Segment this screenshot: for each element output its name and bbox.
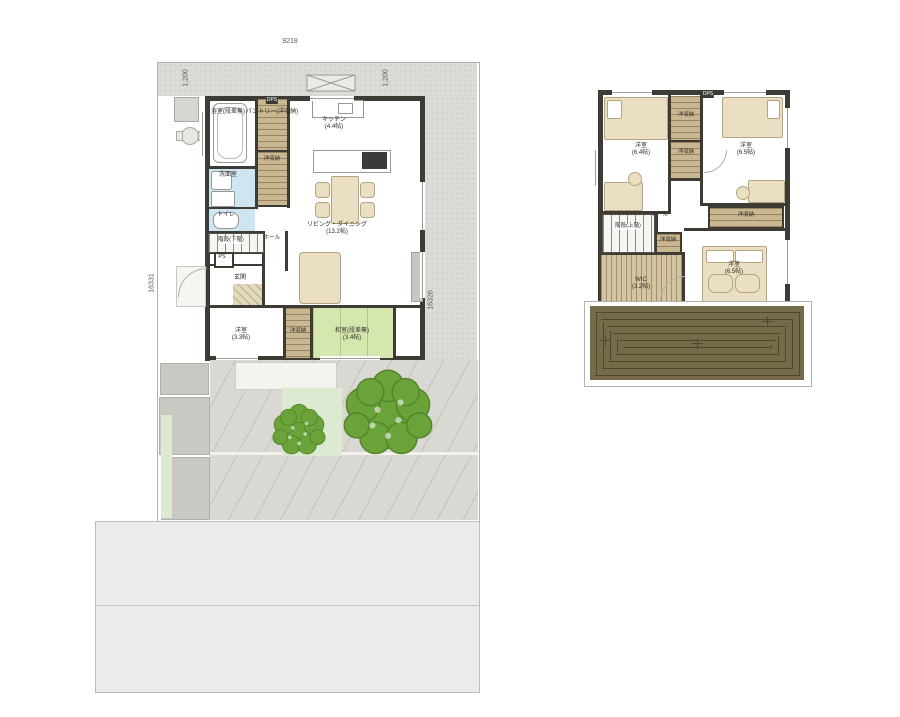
wall-segment (668, 178, 703, 181)
room-label-closet-mid: 洋収納 (264, 156, 281, 163)
stepping-paver (160, 363, 209, 395)
bedroom-ne-size: (6.5帖) (737, 150, 755, 156)
wall-segment (700, 90, 703, 206)
room-label-kitchen: キッチン(4.4帖) (322, 117, 346, 131)
wall-segment (205, 166, 258, 169)
stove-icon (362, 152, 387, 169)
window (724, 90, 766, 95)
living-size: (13.2帖) (326, 229, 348, 235)
floor-plan-canvas: 9218 1,200 1,200 16331 16326 9209 (0, 0, 900, 717)
outdoor-unit-icon (174, 97, 199, 122)
chair-icon (360, 182, 375, 198)
tree-icon (336, 363, 440, 467)
window (785, 108, 790, 148)
wall-segment (700, 203, 790, 206)
chair-icon (315, 182, 330, 198)
window (200, 112, 205, 156)
room-label-bedroom-ne: 洋室(6.5帖) (737, 143, 755, 157)
bedroom-nw-size: (6.4帖) (632, 150, 650, 156)
room-label-hall-2f: ホール (652, 212, 669, 219)
room-label-toilet: トイレ (217, 212, 235, 219)
desk-chair-icon (736, 186, 750, 200)
wic-name: WIC (635, 277, 647, 283)
dim-left: 16331 (149, 273, 156, 292)
bedroom-s-name: 洋室 (728, 262, 740, 268)
wall-segment (671, 140, 700, 142)
wall-segment (205, 207, 258, 209)
dim-right: 16326 (428, 290, 435, 309)
window (310, 96, 354, 101)
wall-segment (310, 308, 313, 361)
wall-segment (205, 305, 425, 308)
wall-segment (255, 150, 290, 152)
wall-segment (393, 308, 396, 361)
pillow-icon (607, 100, 622, 119)
window (593, 150, 598, 186)
kitchen-sink-icon (338, 103, 353, 114)
wic-size: (3.2帖) (632, 284, 650, 290)
room-label-closet-center: 洋収納 (660, 237, 677, 244)
closet-pantry (258, 99, 287, 150)
room-label-dps-2f: DPS (702, 91, 714, 98)
dining-table-icon (331, 176, 359, 224)
road-area (95, 521, 480, 693)
window (420, 252, 425, 298)
room-label-closet-east: 洋収納 (738, 212, 755, 219)
room-label-wic: WIC(3.2帖) (632, 277, 650, 291)
desk-icon (604, 182, 643, 211)
deck-mark (600, 335, 611, 346)
tatami-size: (3.4帖) (343, 335, 361, 341)
dim-top: 9218 (282, 38, 298, 45)
garden-table-icon (181, 127, 199, 145)
room-label-bedroom-nw: 洋室(6.4帖) (632, 143, 650, 157)
deck-mark (762, 316, 773, 327)
tatami-name: 和室(段差無) (335, 328, 369, 334)
room-label-closet-n2: 洋収納 (678, 149, 695, 156)
bedroom-s-size: (6.5帖) (725, 269, 743, 275)
garden-chair-icon (176, 131, 183, 141)
room-label-entrance: 玄関 (234, 275, 246, 282)
kitchen-size: (4.4帖) (325, 124, 343, 130)
dim-offset-left: 1,200 (183, 69, 190, 87)
road-centerline (95, 605, 478, 606)
room-label-living: リビング・ダイニング(13.2帖) (307, 222, 367, 236)
entrance-approach (235, 362, 337, 390)
window (612, 90, 652, 95)
room-label-tatami: 和室(段差無)(3.4帖) (335, 328, 369, 342)
chair-icon (360, 202, 375, 218)
room-label-bath: 浴室(段差無) (211, 109, 245, 116)
bedroom-nw-name: 洋室 (635, 143, 647, 149)
armchair-icon (708, 274, 733, 293)
room-label-closet-south: 洋収納 (290, 328, 307, 335)
room-label-ps: PS (218, 254, 225, 261)
room-label-closet-n1: 洋収納 (678, 112, 695, 119)
stairs-2f (602, 214, 655, 253)
armchair-icon (735, 274, 760, 293)
kitchen-name: キッチン (322, 117, 346, 123)
window (785, 240, 790, 284)
tree-icon (268, 400, 330, 462)
lawn-strip (161, 415, 172, 518)
wall-segment (285, 231, 288, 271)
desk-chair-icon (628, 172, 642, 186)
entrance-step (233, 284, 262, 305)
room-label-washroom: 洗面室 (219, 172, 237, 179)
wall-segment (684, 228, 790, 231)
wall-segment (283, 308, 286, 361)
deck-mark (692, 338, 703, 349)
pillow-icon (767, 100, 780, 119)
desk-icon (748, 180, 785, 203)
chair-icon (315, 202, 330, 218)
closet-n2 (671, 142, 700, 178)
dim-offset-right: 1,200 (383, 69, 390, 87)
room-label-pantry: パントリー(洋収納) (246, 109, 298, 116)
bedroom-ne-name: 洋室 (740, 143, 752, 149)
site-gravel-right (425, 96, 477, 360)
washbasin-icon (211, 191, 235, 207)
bedroom-1f-name: 洋室 (235, 328, 247, 334)
room-label-stairs-2f: 階段(上階) (615, 223, 641, 230)
roof-vent-icon (306, 74, 356, 92)
wall-segment (255, 205, 290, 207)
wall-segment (668, 90, 671, 214)
room-label-bedroom-s: 洋室(6.5帖) (725, 262, 743, 276)
living-name: リビング・ダイニング (307, 222, 367, 228)
window (420, 182, 425, 230)
sofa-icon (299, 252, 341, 304)
room-label-stairs: 階段(下階) (218, 237, 244, 244)
room-label-bedroom-1f: 洋室(3.3帖) (232, 328, 250, 342)
bedroom-1f-size: (3.3帖) (232, 335, 250, 341)
room-label-dps: DPS (266, 97, 278, 104)
room-label-hall: ホール (264, 235, 281, 242)
